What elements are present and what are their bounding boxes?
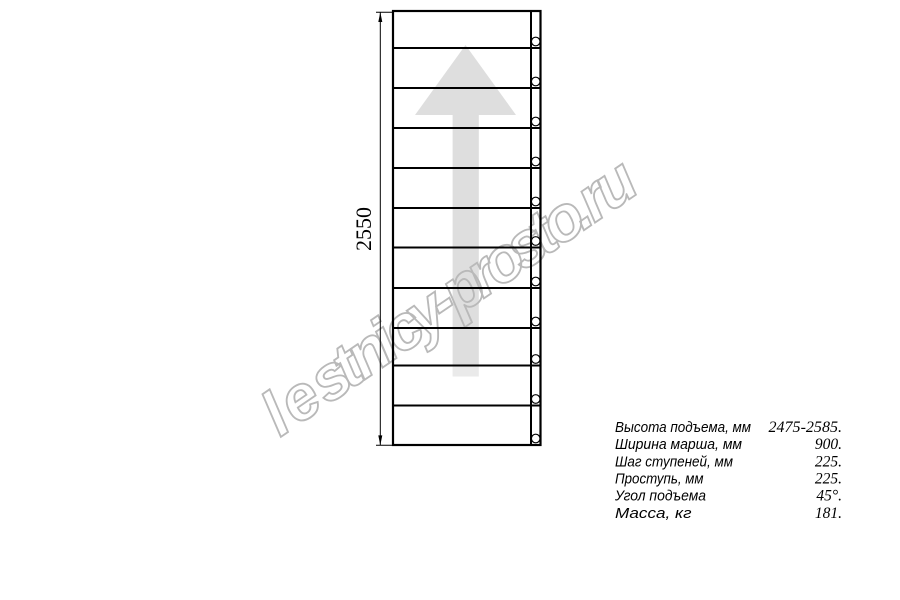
svg-text:Проступь, мм: Проступь, мм [615,471,704,488]
svg-text:900.: 900. [815,436,842,453]
svg-text:181.: 181. [815,505,842,522]
svg-text:Масса, кг: Масса, кг [615,505,692,522]
svg-text:2475-2585.: 2475-2585. [769,419,843,436]
svg-text:45°.: 45°. [816,488,842,505]
svg-text:Угол подъема: Угол подъема [614,488,706,505]
svg-text:225.: 225. [815,453,842,470]
svg-text:2550: 2550 [351,207,376,251]
svg-text:225.: 225. [815,471,842,488]
svg-text:Высота подъема, мм: Высота подъема, мм [615,419,751,436]
svg-text:Ширина марша, мм: Ширина марша, мм [615,436,742,453]
svg-text:Шаг ступеней, мм: Шаг ступеней, мм [615,453,733,470]
